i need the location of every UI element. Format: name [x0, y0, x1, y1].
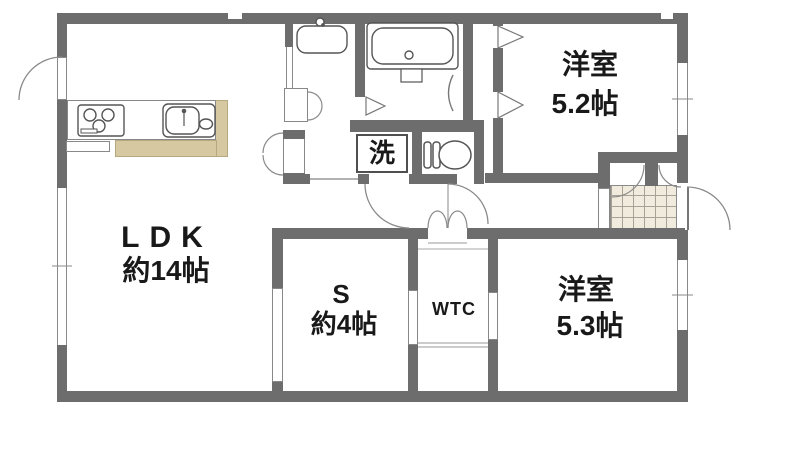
bathtub-icon — [367, 23, 458, 82]
closet-opening — [493, 26, 503, 48]
sliding-door-ldk-s — [272, 288, 283, 382]
window — [57, 188, 67, 345]
wall-segment — [408, 239, 418, 290]
wall-segment — [272, 228, 428, 239]
wall-segment — [57, 391, 688, 402]
wall-segment — [358, 174, 369, 184]
window — [677, 260, 688, 330]
wall-segment — [598, 152, 610, 188]
wall-segment — [57, 13, 67, 57]
room-label-bedroom2: 洋室 — [526, 275, 646, 304]
wall-segment — [409, 174, 457, 184]
washroom-door-arc-icon — [365, 184, 409, 228]
wall-segment — [474, 132, 484, 184]
wall-segment — [488, 340, 498, 391]
balcony-door-leaf — [57, 57, 67, 100]
wall-segment — [677, 330, 688, 395]
balcony-door-arc-icon — [19, 57, 62, 100]
wall-segment — [463, 13, 473, 120]
kitchen-cabinet — [66, 141, 110, 152]
hall-door-arc-icon — [448, 184, 488, 224]
wall-segment — [350, 120, 484, 132]
wall-segment — [598, 152, 682, 163]
wall-segment — [272, 228, 283, 288]
wall-segment — [355, 13, 365, 97]
counter-accent — [115, 140, 217, 157]
wall-segment — [57, 13, 688, 24]
bath-door-icon — [449, 75, 454, 111]
room-size-service: 約4帖 — [284, 311, 404, 338]
toilet-icon — [424, 141, 471, 169]
wall-segment — [272, 382, 283, 402]
wall-segment — [285, 13, 293, 47]
wall-notch — [228, 13, 242, 19]
thin-partition — [286, 47, 293, 88]
wall-segment — [283, 173, 305, 182]
laundry-label: 洗 — [369, 140, 395, 167]
room-size-ldk: 約14帖 — [76, 256, 256, 285]
wall-notch — [661, 13, 673, 19]
closet-opening — [493, 92, 503, 118]
wall-segment — [467, 228, 685, 239]
kitchen-counter — [67, 100, 216, 140]
wall-segment — [488, 239, 498, 292]
floorplan: 洗 LDK 約14帖 洋室 5.2帖 洋室 5.3帖 S 約4帖 WTC — [0, 0, 800, 468]
wall-segment — [283, 130, 305, 139]
entrance-door-icon — [687, 187, 730, 230]
room-label-service: S — [311, 281, 371, 308]
wall-segment — [677, 13, 688, 63]
wall-segment — [485, 173, 610, 183]
room-label-ldk: LDK — [77, 222, 257, 254]
room-size-bedroom1: 5.2帖 — [525, 89, 645, 118]
storage-box — [284, 88, 308, 122]
laundry-space: 洗 — [356, 134, 408, 173]
wall-segment — [408, 345, 418, 391]
room-label-bedroom1: 洋室 — [530, 50, 650, 79]
entry-step — [598, 188, 610, 230]
entry-tile-floor — [610, 185, 677, 230]
window — [677, 63, 688, 135]
wall-segment — [412, 132, 422, 174]
room-size-bedroom2: 5.3帖 — [530, 311, 650, 340]
room-label-wtc: WTC — [414, 300, 494, 319]
